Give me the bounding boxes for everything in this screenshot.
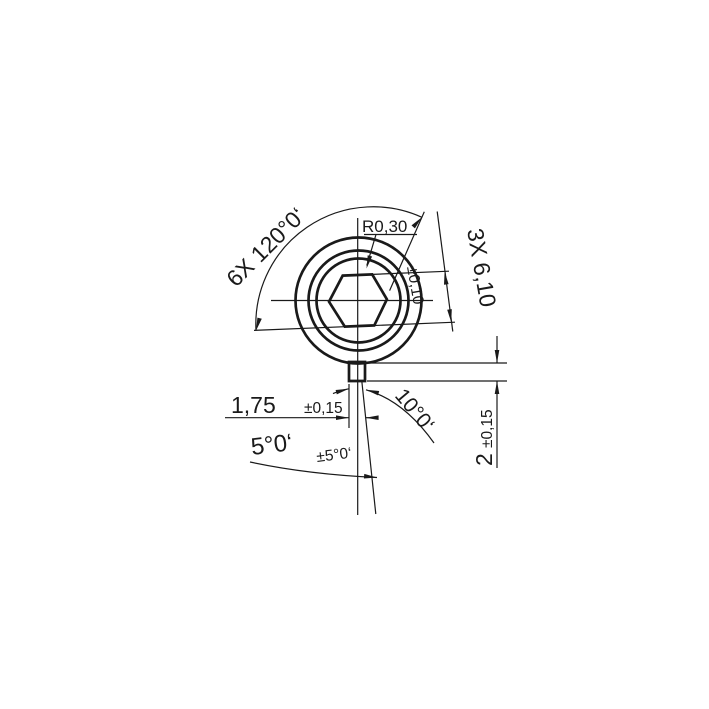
arrow-610-bottom [447, 309, 452, 322]
label-tab-height: 2 [471, 453, 497, 466]
label-tab-width: 1,75 [231, 392, 276, 418]
annotations: 6X 120°0‘ R0,30 3X 6,10 ±0,10 1,75 ±0,15… [221, 202, 501, 466]
arrow-610-top [444, 272, 449, 285]
bottom-tab [349, 362, 365, 381]
label-tab-width-tol: ±0,15 [304, 400, 343, 417]
arrow-10-right [336, 389, 349, 395]
label-taper-angle: 10°0‘ [390, 384, 439, 436]
label-half-taper-angle-tol: ±5°0‘ [315, 445, 352, 466]
arrow-175-left [366, 415, 379, 420]
label-tab-height-tol: ±0,15 [479, 409, 496, 448]
taper-line [362, 381, 376, 514]
arrow-120-bottom [256, 318, 262, 331]
arrow-120-top [412, 217, 422, 228]
technical-drawing: 6X 120°0‘ R0,30 3X 6,10 ±0,10 1,75 ±0,15… [0, 0, 709, 709]
label-half-taper-angle: 5°0‘ [249, 429, 294, 461]
arrow-2-down [495, 350, 500, 363]
label-across-flats: 3X 6,10 [462, 226, 501, 309]
arrow-2-up [495, 381, 500, 394]
label-corner-radius: R0,30 [362, 217, 407, 236]
part-geometry [296, 238, 422, 382]
arrow-10-left [366, 390, 379, 396]
drawing-canvas: 6X 120°0‘ R0,30 3X 6,10 ±0,10 1,75 ±0,15… [0, 0, 709, 709]
